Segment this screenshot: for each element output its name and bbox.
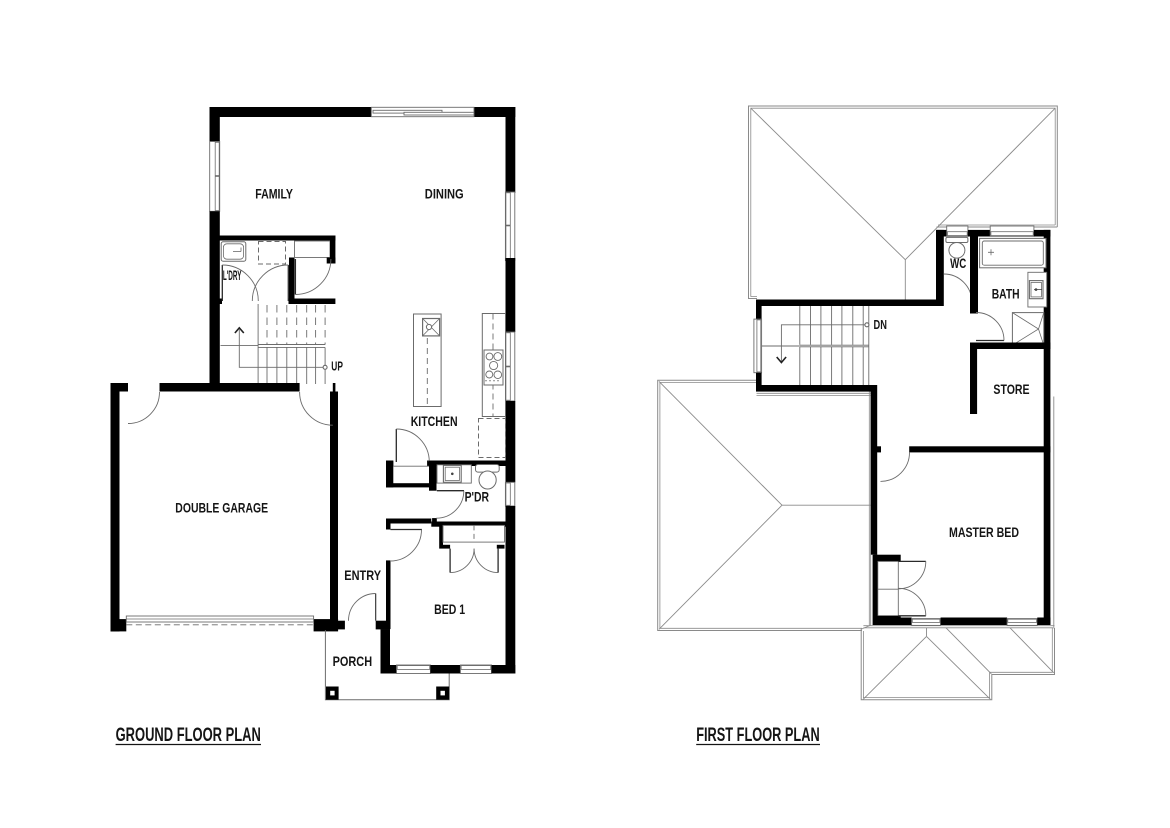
svg-text:L'DRY: L'DRY xyxy=(223,267,242,283)
svg-text:BED 1: BED 1 xyxy=(434,601,465,617)
svg-text:FAMILY: FAMILY xyxy=(255,185,293,201)
svg-text:GROUND FLOOR PLAN: GROUND FLOOR PLAN xyxy=(116,725,261,746)
svg-text:DN: DN xyxy=(874,318,887,332)
svg-text:PORCH: PORCH xyxy=(333,653,373,669)
svg-text:KITCHEN: KITCHEN xyxy=(411,413,458,429)
svg-text:DOUBLE GARAGE: DOUBLE GARAGE xyxy=(175,499,268,515)
svg-text:STORE: STORE xyxy=(993,381,1029,397)
svg-text:BATH: BATH xyxy=(992,286,1020,302)
svg-text:UP: UP xyxy=(331,360,343,374)
svg-text:DINING: DINING xyxy=(425,185,464,201)
svg-text:WC: WC xyxy=(950,255,966,271)
svg-text:P'DR: P'DR xyxy=(465,489,490,505)
svg-text:MASTER BED: MASTER BED xyxy=(949,524,1019,540)
svg-text:ENTRY: ENTRY xyxy=(344,567,381,583)
svg-text:FIRST FLOOR PLAN: FIRST FLOOR PLAN xyxy=(696,725,820,746)
